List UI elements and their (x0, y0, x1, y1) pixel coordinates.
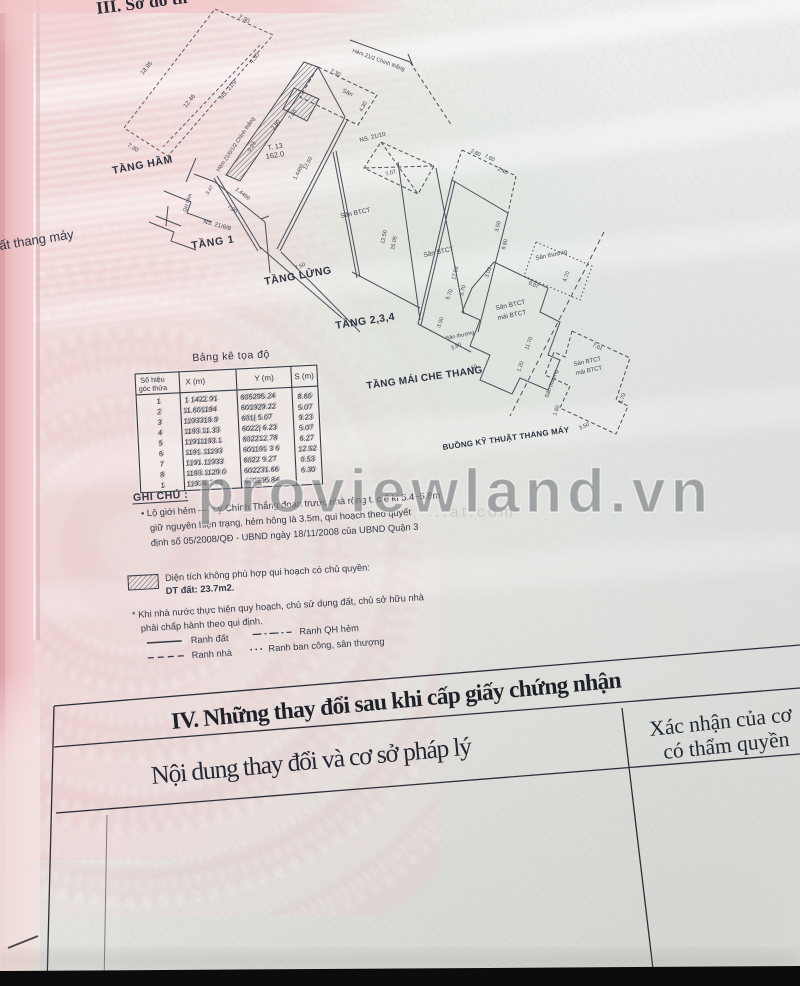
svg-text:góc thửa: góc thửa (139, 383, 168, 393)
svg-text:...........at.com: ...........at.com (368, 504, 516, 521)
svg-text:S (m): S (m) (294, 371, 314, 381)
svg-text:X (m): X (m) (185, 377, 205, 387)
svg-text:Y (m): Y (m) (254, 373, 274, 383)
